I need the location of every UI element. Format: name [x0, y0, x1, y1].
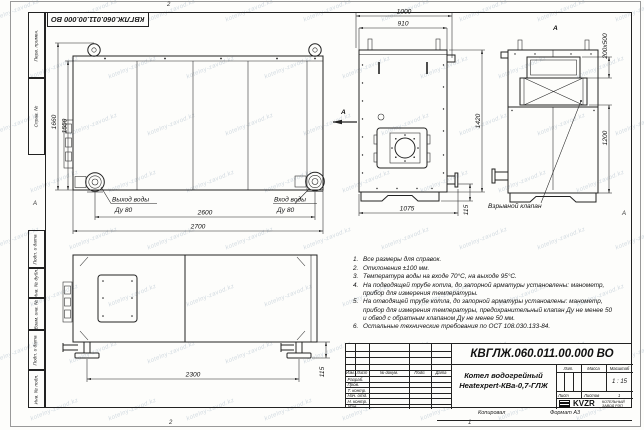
note-item: 5.На отводящей трубе котла, до запорной … [350, 298, 613, 322]
sheets-value: 1 [618, 393, 620, 398]
inlet-dn: Ду 80 [276, 207, 295, 214]
boiler-rear-body [501, 40, 598, 202]
note-text: Все размеры для справок. [363, 256, 613, 264]
drain-stub [447, 173, 458, 187]
view-a-title: А [552, 25, 558, 32]
water-inlet-flange [295, 172, 324, 191]
kvzr-logo-mark [559, 400, 570, 408]
scale-label: Масштаб [606, 365, 633, 372]
note-number: 3. [350, 273, 363, 281]
dim-1550: 1550 [62, 118, 69, 133]
fold-mark-left: А [33, 201, 37, 207]
burner-door [374, 128, 430, 168]
note-number: 1. [350, 256, 363, 264]
outlet-label: Выход воды [112, 196, 149, 204]
fold-line [437, 420, 632, 421]
product-name-line2: Heatexpert-КВа-0,7-ГЛЖ [459, 381, 548, 391]
support-feet [63, 342, 311, 358]
doc-number-stamp-text: КВГЛЖ.060.011.00.000 ВО [51, 15, 144, 24]
col-list: Лист [355, 370, 369, 377]
note-number: 4. [350, 282, 363, 298]
dim-2300: 2300 [185, 372, 201, 379]
drawing-sheet: kotelny-zavod.kzkotelny-zavod.kzkotelny-… [0, 0, 644, 430]
front-view: 1660 1550 2600 2700 Выход воды Ду 80 Вхо… [45, 40, 357, 240]
boiler-front-body [73, 56, 323, 190]
frame-cell-podp-data-1: Подп. и дата [28, 230, 45, 268]
lifting-lugs [88, 44, 321, 56]
frame-cell-label: Инв. № дубл. [34, 268, 39, 298]
note-item: 6.Остальные технические требования по ОС… [350, 323, 613, 331]
company-name-line2: ЗАВОД РЭП [602, 404, 625, 408]
frame-cell-label: Инв. № подл. [34, 374, 39, 404]
sheets-label: Листов [584, 393, 599, 398]
frame-cell-perv-primen: Перв. примен. [28, 12, 45, 78]
top-view: 2300 115 [45, 245, 345, 395]
note-item: 2.Отклонения ±100 мм. [350, 265, 613, 273]
frame-cell-podp-data-2: Подп. и дата [28, 330, 45, 370]
company-name: КОТЕЛЬНЫЙ ЗАВОД РЭП [602, 400, 625, 409]
row-prov: Пров. [346, 382, 359, 387]
col-docum: № докум. [369, 370, 409, 377]
row-nach-otd: Нач. отд. [346, 393, 367, 398]
note-text: Отклонения ±100 мм. [363, 265, 613, 273]
rear-dimensions: 200х500 1200 [582, 33, 612, 193]
format-label: Формат А3 [550, 410, 580, 416]
col-podp: Подп. [409, 370, 431, 377]
product-name-line1: Котел водогрейный [464, 371, 542, 381]
mass-label: Масса [581, 365, 606, 372]
title-block: КВГЛЖ.060.011.00.000 ВО Котел водогрейны… [345, 343, 632, 408]
zone-mark-bottom-left: 2 [169, 420, 172, 426]
dim-2700: 2700 [190, 224, 206, 231]
dim-1200: 1200 [602, 130, 609, 145]
note-item: 4.На подводящей трубе котла, до запорной… [350, 282, 613, 298]
col-data: Дата [431, 370, 451, 377]
note-number: 2. [350, 265, 363, 273]
dim-115-side: 115 [463, 204, 470, 215]
inlet-callout: Вход воды Ду 80 [273, 189, 317, 214]
note-text: На подводящей трубе котла, до запорной а… [363, 282, 613, 298]
fold-mark-right: А [622, 211, 626, 217]
explosion-valve [520, 78, 587, 105]
kvzr-logo [559, 400, 570, 408]
boiler-side-body [359, 39, 455, 201]
row-n-kontr: Н. контр. [346, 399, 367, 404]
frame-cell-sprav-no: Справ. № [28, 78, 45, 155]
top-hatch [98, 275, 137, 322]
lit-label: Лит. [556, 365, 581, 372]
scale-value: 1 : 15 [606, 372, 633, 391]
col-izm: Изм. [346, 370, 355, 377]
outlet-dn: Ду 80 [114, 207, 133, 214]
explosion-valve-label: Взрывной клапан [488, 202, 542, 210]
note-text: На отводящей трубе котла, до запорной ар… [363, 298, 613, 322]
sheet-label: Лист [558, 393, 569, 398]
inlet-label: Вход воды [274, 196, 306, 204]
title-doc-number: КВГЛЖ.060.011.00.000 ВО [451, 344, 633, 364]
frame-cell-label: Подп. и дата [34, 234, 39, 264]
rear-view: А [485, 10, 635, 220]
note-item: 3.Температура воды на входе 70°С, на вых… [350, 273, 613, 281]
view-a-arrow-label: А [340, 109, 346, 116]
kvzr-logo-text: KVZR [573, 399, 595, 408]
water-outlet-flange [75, 173, 104, 192]
row-utv: Утв. [346, 404, 357, 409]
dim-200x500: 200х500 [602, 33, 609, 60]
dim-1420: 1420 [475, 113, 482, 128]
dim-2600: 2600 [197, 210, 213, 217]
rear-stub-pipe [492, 169, 508, 183]
top-dimensions: 2300 115 [87, 342, 330, 382]
note-number: 6. [350, 323, 363, 331]
doc-number-stamp: КВГЛЖ.060.011.00.000 ВО [47, 12, 149, 27]
frame-cell-inv-dubl: Инв. № дубл. [28, 268, 45, 298]
frame-cell-label: Справ. № [34, 106, 39, 128]
technical-notes: 1.Все размеры для справок. 2.Отклонения … [350, 256, 613, 332]
dim-910: 910 [397, 21, 408, 28]
zone-mark-bottom-right: 1 [468, 420, 471, 426]
side-dimensions: 1000 910 1420 115 1075 [356, 9, 485, 217]
row-t-kontr: Т. контр. [346, 388, 366, 393]
note-text: Остальные технические требования по ОСТ … [363, 323, 613, 331]
front-dimensions: 1660 1550 2600 2700 [51, 43, 323, 234]
product-name: Котел водогрейный Heatexpert-КВа-0,7-ГЛЖ [451, 364, 556, 398]
zone-mark-top: 2 [167, 2, 170, 8]
side-view: 1000 910 1420 115 1075 [352, 5, 497, 220]
note-text: Температура воды на входе 70°С, на выход… [363, 273, 613, 281]
dim-115-top: 115 [319, 366, 326, 377]
frame-cell-vzam-inv: Взам. инв. № [28, 298, 45, 330]
dim-1000: 1000 [397, 9, 412, 16]
copied-label: Копировал [478, 410, 505, 416]
top-side-bracket [63, 282, 72, 322]
boiler-top-body [73, 255, 317, 342]
frame-cell-inv-podl: Инв. № подл. [28, 370, 45, 408]
dim-1075: 1075 [400, 206, 415, 213]
row-razrab: Разраб. [346, 377, 363, 382]
note-number: 5. [350, 298, 363, 322]
outlet-callout: Выход воды Ду 80 [101, 187, 157, 214]
frame-cell-label: Взам. инв. № [34, 299, 39, 329]
note-item: 1.Все размеры для справок. [350, 256, 613, 264]
frame-cell-label: Перв. примен. [34, 29, 39, 61]
dim-1660: 1660 [51, 114, 58, 129]
frame-cell-label: Подп. и дата [34, 335, 39, 365]
